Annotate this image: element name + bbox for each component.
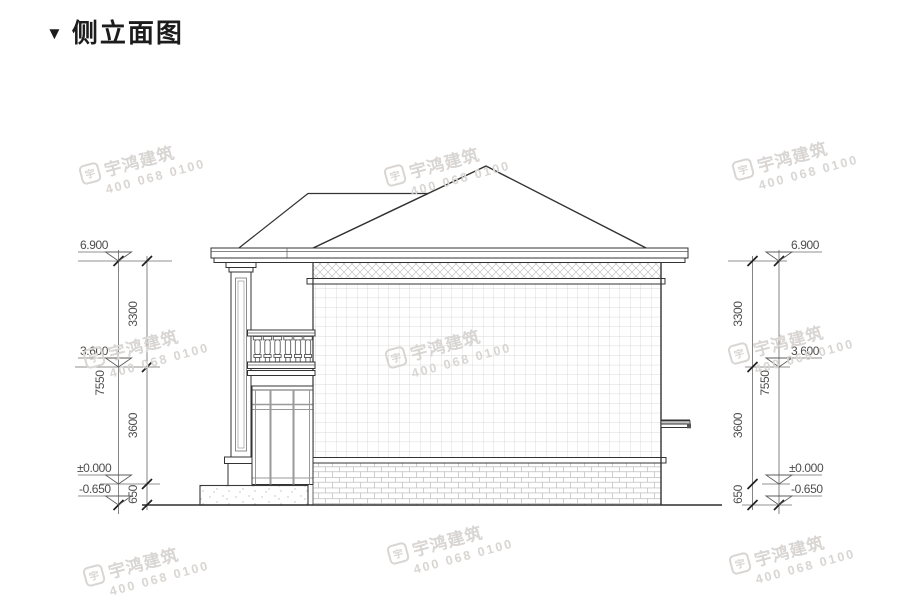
seg-dim-right-2: 650 [731, 484, 745, 504]
main-wall [305, 250, 666, 505]
elev-label-right-2: ±0.000 [789, 461, 824, 475]
roof [211, 166, 688, 263]
column-capital [226, 263, 256, 268]
seg-dim-left-1: 3600 [126, 412, 140, 438]
baluster [304, 337, 312, 363]
baluster [294, 337, 302, 363]
eave-fascia [211, 248, 688, 258]
overall-dim-right: 7550 [758, 370, 772, 396]
seg-dim-right-0: 3300 [731, 301, 745, 327]
belt-band [307, 279, 665, 285]
elev-label-right-1: 3.600 [791, 344, 820, 358]
dimensions-left: 6.900 3.600 ±0.000 -0.650 3300 3600 650 … [75, 238, 172, 514]
porch-platform [200, 486, 308, 506]
elev-label-left-0: 6.900 [80, 238, 109, 252]
seg-dim-left-2: 650 [126, 484, 140, 504]
overall-dim-left: 7550 [93, 370, 107, 396]
right-canopy [661, 420, 691, 428]
elev-label-right-0: 6.900 [791, 238, 820, 252]
balcony-slab [248, 371, 316, 376]
brick-base [313, 463, 661, 505]
title-text: 侧立面图 [72, 20, 184, 46]
baluster [263, 337, 271, 363]
frieze-band [313, 263, 661, 279]
wall-field [313, 284, 661, 458]
elev-label-left-2: ±0.000 [77, 461, 112, 475]
baluster [284, 337, 292, 363]
seg-dim-right-1: 3600 [731, 412, 745, 438]
baluster [273, 337, 281, 363]
roof-main-hip [310, 166, 649, 250]
title-marker-icon: ▼ [46, 25, 63, 42]
elev-label-right-3: -0.650 [791, 482, 823, 496]
eave-trim [214, 258, 685, 263]
balcony-railing [248, 330, 316, 376]
dimensions-right: 6.900 3.600 ±0.000 -0.650 3300 3600 650 … [728, 238, 824, 514]
elevation-sheet: ▼ 侧立面图 [0, 0, 910, 614]
column-pedestal [228, 464, 254, 486]
elev-label-left-1: 3.600 [80, 344, 109, 358]
page-title: ▼ 侧立面图 [46, 20, 184, 46]
glass-door [252, 386, 313, 485]
roof-left-hip [237, 194, 428, 250]
plinth-band [305, 458, 666, 464]
elev-label-left-3: -0.650 [79, 482, 111, 496]
seg-dim-left-0: 3300 [126, 301, 140, 327]
baluster [253, 337, 261, 363]
elevation-drawing: 6.900 3.600 ±0.000 -0.650 3300 3600 650 … [0, 0, 910, 614]
